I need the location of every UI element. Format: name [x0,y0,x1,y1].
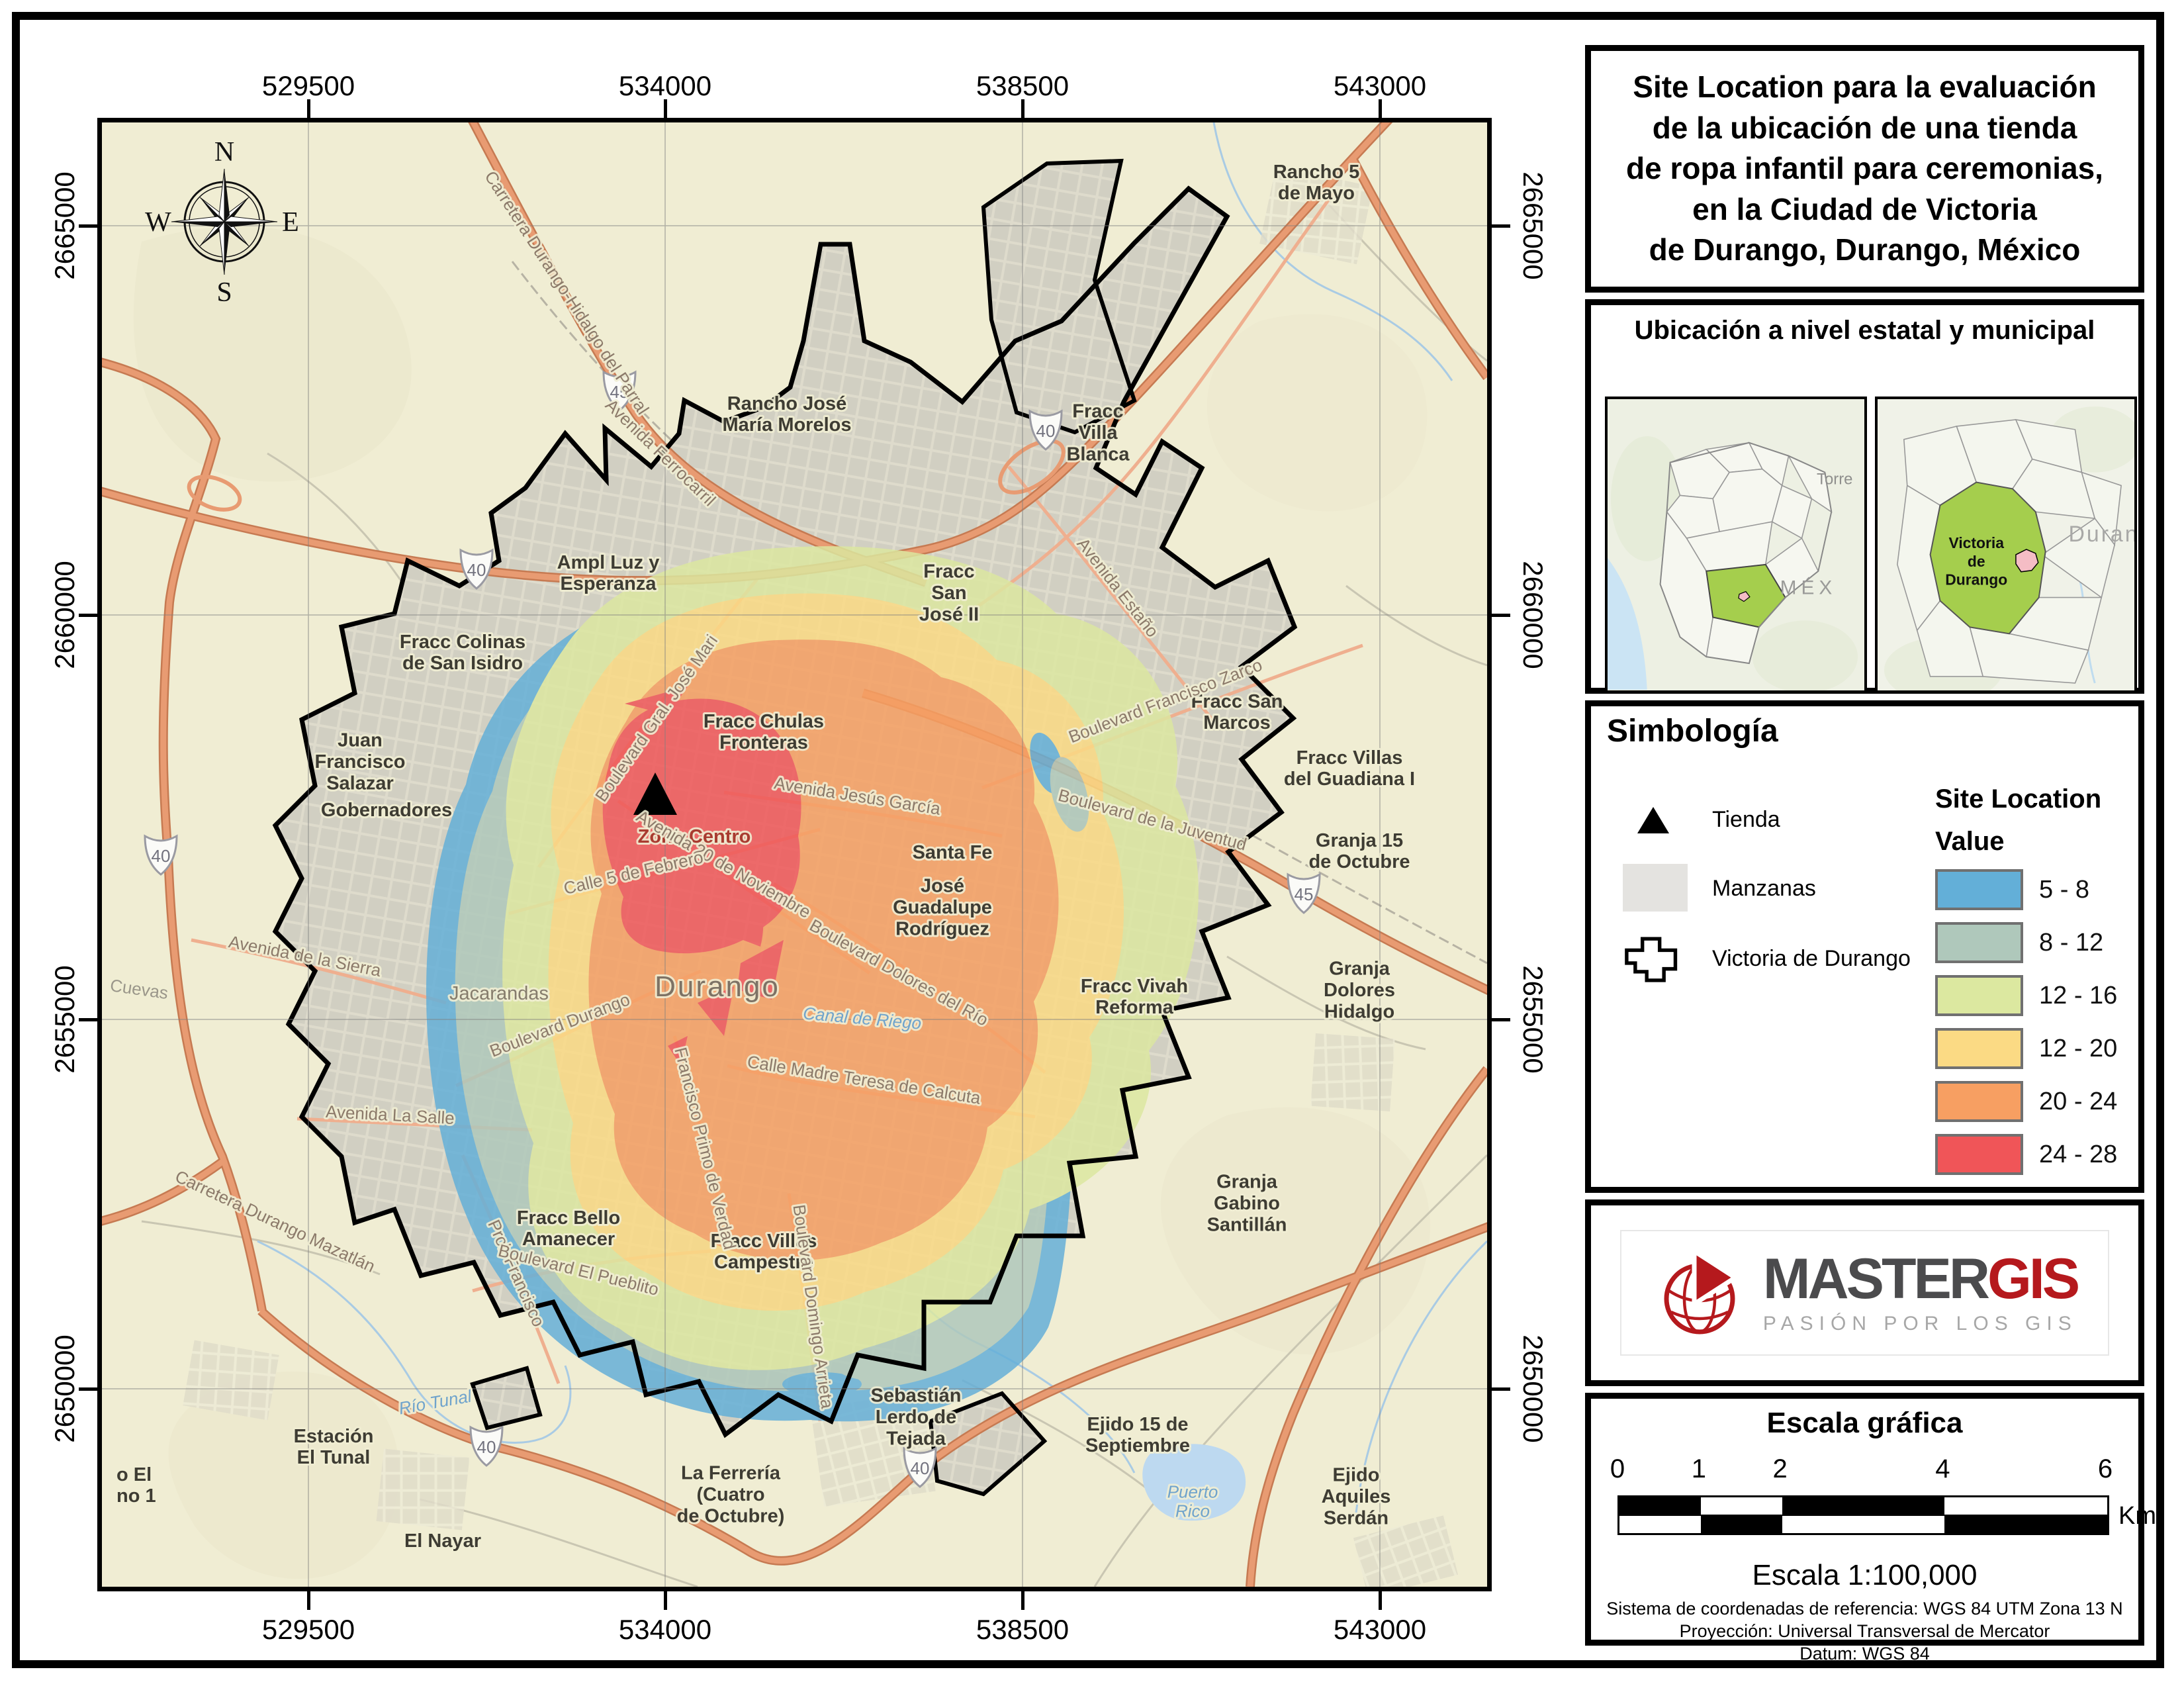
legend-color-chip [1935,975,2023,1016]
legend-class-row: 12 - 20 [1935,1022,2117,1075]
axis-tick-left [79,614,97,617]
svg-text:40: 40 [1036,421,1056,441]
legend-range-label: 12 - 20 [2039,1035,2117,1063]
map-place-label: Fracc ChulasFronteras [704,711,824,753]
victoria-outline-icon [1617,929,1690,990]
scale-tick-labels: 01246 [1617,1454,2105,1486]
map-place-label: Rancho JoséMaría Morelos [723,393,852,436]
inset-label-mexico: MÉX [1780,577,1837,599]
compass-n: N [214,137,234,167]
axis-tick-top [1021,99,1024,118]
axis-label-left: 2655000 [49,965,81,1074]
map-place-label: Rancho 5de Mayo [1273,162,1360,204]
legend-class-row: 8 - 12 [1935,916,2117,969]
victoria-legend-label: Victoria de Durango [1712,946,1911,972]
legend-range-label: 8 - 12 [2039,929,2103,957]
axis-tick-bottom [307,1591,310,1610]
scale-header: Escala gráfica [1591,1407,2138,1440]
inset-header: Ubicación a nivel estatal y municipal [1591,316,2138,346]
legend-range-label: 24 - 28 [2039,1141,2117,1169]
brand-master: MASTER [1763,1247,1987,1311]
axis-tick-left [79,224,97,228]
raster-legend-classes: 5 - 88 - 1212 - 1612 - 2020 - 2424 - 28 [1935,863,2117,1181]
axis-label-bottom: 534000 [606,1614,725,1646]
scale-box: Escala gráfica 01246 Km Escala 1:100,000… [1585,1393,2144,1646]
axis-label-right: 2650000 [1517,1335,1549,1443]
legend-color-chip [1935,869,2023,910]
axis-tick-bottom [664,1591,667,1610]
map-place-label: o Elno 1 [116,1464,156,1507]
title-box: Site Location para la evaluación de la u… [1585,45,2144,293]
main-map-canvas: 40454045404040 N E S W [102,122,1487,1587]
axis-label-top: 529500 [249,70,368,102]
brand-tagline: PASIÓN POR LOS GIS [1763,1313,2077,1335]
axis-tick-left [79,1018,97,1021]
scale-ratio: Escala 1:100,000 [1591,1559,2138,1592]
scale-bar-segment [1701,1497,1782,1515]
axis-label-right: 2665000 [1517,171,1549,280]
globe-icon [1652,1243,1751,1342]
tienda-label: Tienda [1712,807,1780,833]
manzanas-label: Manzanas [1712,876,1816,902]
legend-class-row: 12 - 16 [1935,969,2117,1022]
legend-class-row: 24 - 28 [1935,1128,2117,1181]
compass-e: E [282,207,299,238]
axis-label-right: 2655000 [1517,965,1549,1074]
svg-text:45: 45 [1295,884,1314,904]
scale-bar-segment [1619,1516,1701,1533]
scale-tick-label: 1 [1692,1454,1706,1484]
map-place-label: Santa Fe [913,842,993,863]
state-inset-map: Torre MÉX [1605,397,1867,693]
scale-bar-segment [1782,1516,1945,1533]
raster-legend-subtitle: Value [1935,827,2005,857]
map-place-label: Granja 15de Octubre [1308,830,1410,872]
legend-color-chip [1935,1134,2023,1175]
compass-w: W [145,207,171,238]
legend-box: Simbología Tienda Manzanas Victoria de D… [1585,700,2144,1193]
legend-color-chip [1935,922,2023,963]
inset-label-torreon: Torre [1817,470,1852,488]
svg-text:40: 40 [152,846,171,866]
location-inset-box: Ubicación a nivel estatal y municipal [1585,299,2144,694]
axis-label-left: 2665000 [49,171,81,280]
axis-label-top: 538500 [963,70,1082,102]
axis-label-top: 534000 [606,70,725,102]
svg-text:40: 40 [467,560,486,580]
axis-label-bottom: 543000 [1320,1614,1439,1646]
axis-tick-bottom [1021,1591,1024,1610]
map-place-label: Fracc Villasdel Guadiana I [1284,747,1415,790]
main-map-frame: 40454045404040 N E S W [97,118,1492,1591]
mastergis-logo: MASTERGIS PASIÓN POR LOS GIS [1620,1230,2109,1356]
map-place-label: Durango [655,970,780,1003]
municipal-inset-map: Victoria de Durango Durang [1875,397,2137,693]
axis-label-top: 543000 [1320,70,1439,102]
axis-tick-right [1492,614,1510,617]
axis-tick-top [664,99,667,118]
map-place-label: Fracc VivahReforma [1081,976,1188,1018]
svg-text:40: 40 [911,1458,930,1478]
scale-bar-segment [1701,1516,1782,1533]
map-place-label: Fracc SanMarcos [1191,691,1283,733]
axis-label-right: 2660000 [1517,561,1549,669]
svg-text:de: de [1968,553,1985,570]
scale-unit: Km [2118,1502,2156,1530]
legend-color-chip [1935,1081,2023,1122]
legend-color-chip [1935,1028,2023,1069]
inset-label-durango: Durang [2069,522,2137,547]
legend-range-label: 20 - 24 [2039,1088,2117,1116]
map-place-label: Gobernadores [321,800,452,821]
axis-tick-right [1492,1018,1510,1021]
scale-bar-segment [1944,1497,2107,1515]
map-place-label: Ejido 15 deSeptiembre [1085,1414,1190,1456]
axis-label-bottom: 529500 [249,1614,368,1646]
raster-legend-title: Site Location [1935,784,2101,814]
svg-text:Victoria: Victoria [1948,534,2004,551]
crs-line: Proyección: Universal Transversal de Mer… [1591,1620,2138,1642]
legend-header: Simbología [1607,713,1778,749]
logo-box: MASTERGIS PASIÓN POR LOS GIS [1585,1199,2144,1386]
manzanas-icon [1623,864,1688,912]
scale-tick-label: 2 [1773,1454,1788,1484]
map-place-label: Jacarandas [449,983,549,1004]
map-place-label: Fracc Colinasde San Isidro [400,632,525,674]
scale-tick-label: 4 [1935,1454,1950,1484]
brand-gis: GIS [1987,1247,2077,1311]
map-place-label: GranjaDoloresHidalgo [1324,959,1395,1023]
scale-bar-segment [1782,1497,1945,1515]
brand-wordmark: MASTERGIS [1763,1250,2077,1307]
map-place-label: GranjaGabinoSantillán [1207,1172,1287,1236]
legend-range-label: 5 - 8 [2039,876,2089,904]
scale-tick-label: 6 [2098,1454,2113,1484]
crs-line: Sistema de coordenadas de referencia: WG… [1591,1597,2138,1620]
axis-tick-top [1379,99,1382,118]
svg-text:Durango: Durango [1945,571,2007,588]
svg-text:40: 40 [477,1437,496,1457]
crs-info: Sistema de coordenadas de referencia: WG… [1591,1597,2138,1665]
map-place-label: El Nayar [404,1530,481,1552]
scale-tick-label: 0 [1610,1454,1625,1484]
axis-tick-right [1492,1387,1510,1391]
legend-range-label: 12 - 16 [2039,982,2117,1010]
map-place-label: Ampl Luz yEsperanza [557,552,660,594]
inset-maps: Torre MÉX [1591,391,2138,693]
scale-bar-segment [1619,1497,1701,1515]
map-title: Site Location para la evaluación de la u… [1626,67,2103,271]
axis-label-bottom: 538500 [963,1614,1082,1646]
crs-line: Datum: WGS 84 [1591,1642,2138,1665]
compass-s: S [216,277,232,308]
legend-class-row: 5 - 8 [1935,863,2117,916]
axis-tick-bottom [1379,1591,1382,1610]
tienda-icon [1636,804,1670,835]
scale-bar-segment [1944,1516,2107,1533]
axis-label-left: 2650000 [49,1335,81,1443]
scale-bar: 01246 Km [1617,1454,2134,1560]
axis-label-left: 2660000 [49,561,81,669]
axis-tick-left [79,1387,97,1391]
axis-tick-right [1492,224,1510,228]
map-place-label: EstaciónEl Tunal [294,1426,374,1468]
map-place-label: Fracc BelloAmanecer [517,1207,620,1250]
legend-class-row: 20 - 24 [1935,1075,2117,1128]
axis-tick-top [307,99,310,118]
